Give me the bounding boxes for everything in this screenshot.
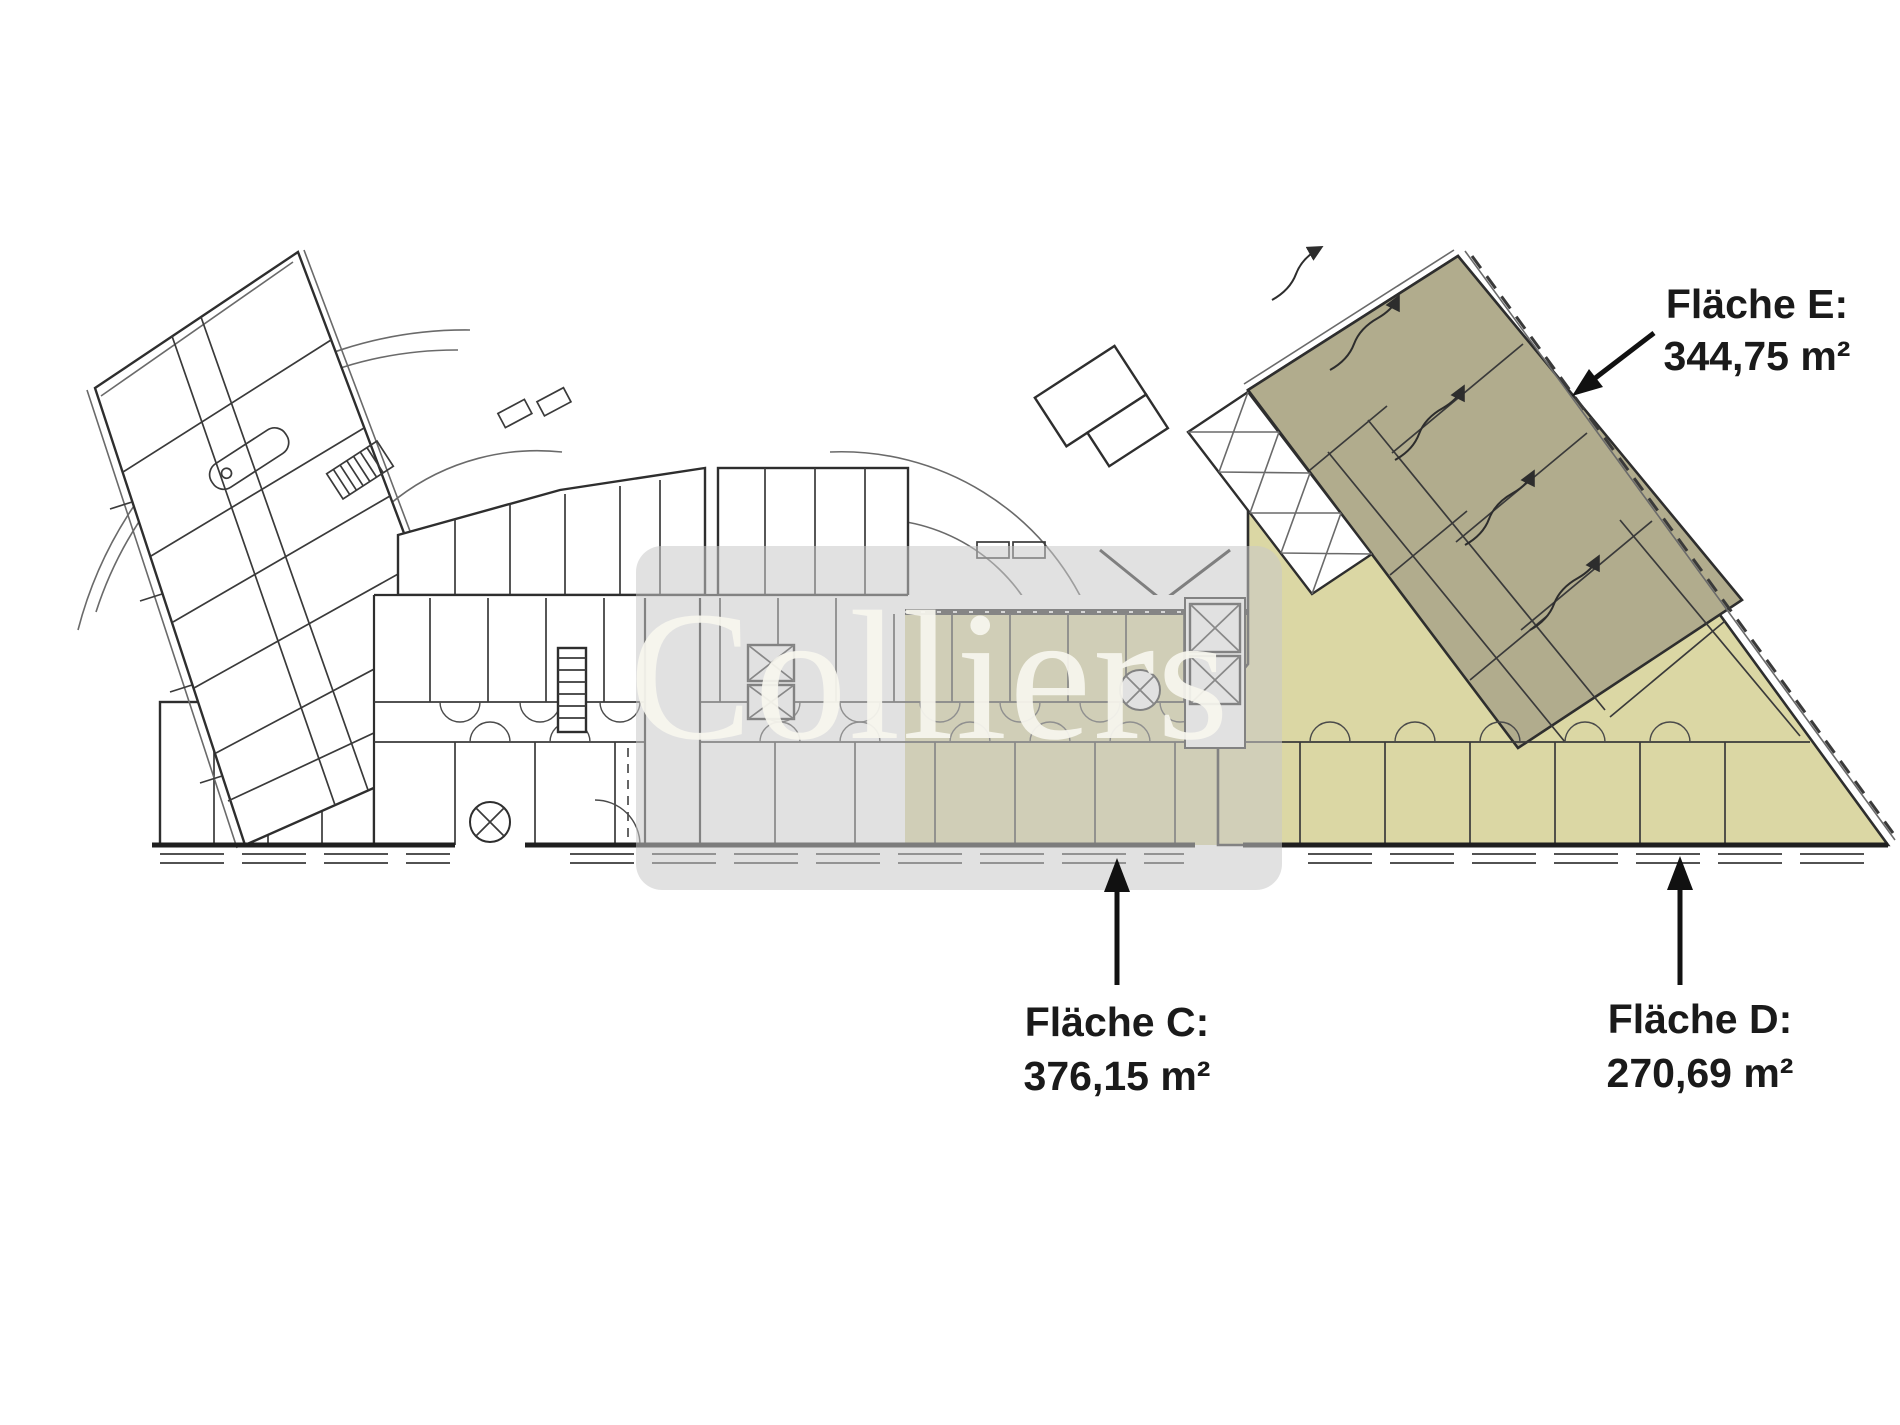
label-c-value: 376,15 m² [1024, 1053, 1211, 1099]
stair-core-center [558, 648, 586, 732]
watermark: Colliers [629, 546, 1282, 890]
annotation-e: Fläche E: 344,75 m² [1572, 281, 1850, 396]
wing-root-rooms [1035, 346, 1168, 480]
annotation-d: Fläche D: 270,69 m² [1607, 856, 1794, 1096]
label-c-name: Fläche C: [1025, 999, 1210, 1045]
arrow-e [1594, 333, 1654, 379]
annotation-c: Fläche C: 376,15 m² [1024, 858, 1211, 1099]
label-e-name: Fläche E: [1666, 281, 1848, 327]
arrow-d-head [1667, 856, 1693, 890]
watermark-text: Colliers [629, 574, 1231, 779]
expansion-joint-column [470, 802, 510, 842]
label-d-value: 270,69 m² [1607, 1050, 1794, 1096]
floor-plan-drawing: Colliers Fläche E: 344,75 m² Fläche C: 3… [0, 0, 1900, 1425]
label-e-value: 344,75 m² [1664, 333, 1851, 379]
floor-plan-page: Colliers Fläche E: 344,75 m² Fläche C: 3… [0, 0, 1900, 1425]
label-d-name: Fläche D: [1608, 996, 1793, 1042]
